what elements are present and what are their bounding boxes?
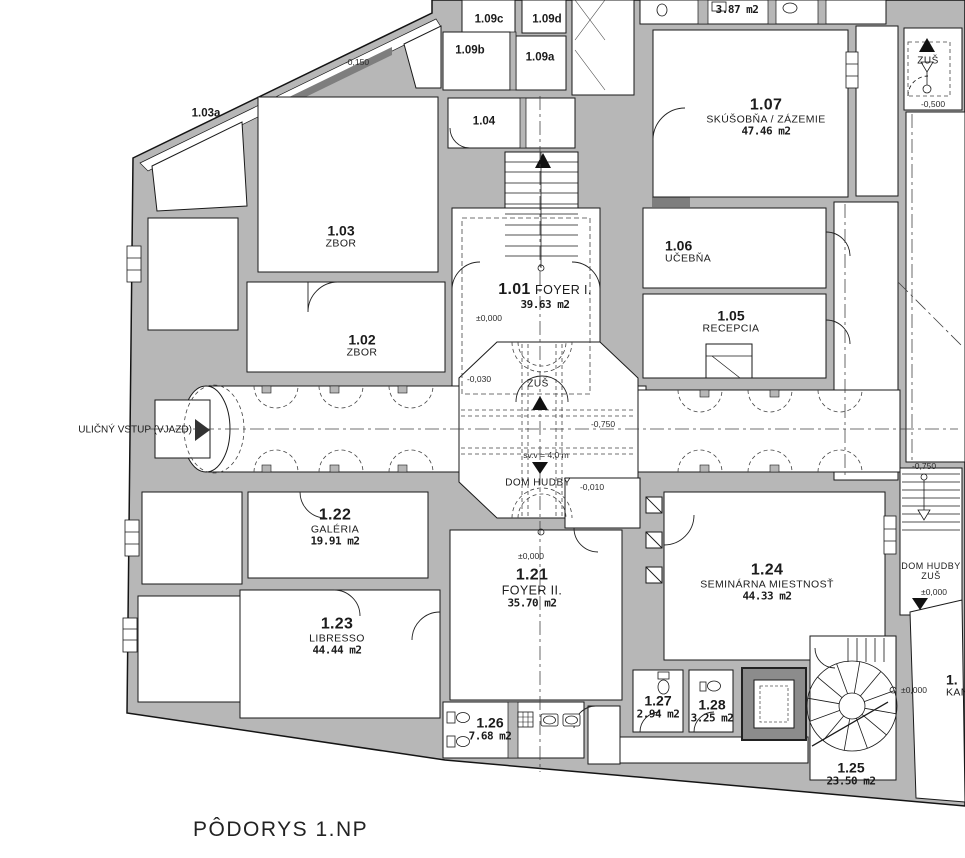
elevation-mark: ±0,000	[518, 551, 544, 561]
room-id: 1.26	[469, 715, 512, 730]
room-area: 2.94 m2	[637, 709, 680, 721]
room-label-1-03: 1.03 ZBOR	[326, 224, 357, 251]
room-label-1-05: 1.05 RECEPCIA	[703, 309, 760, 336]
room-area: 3.87 m2	[716, 4, 759, 16]
room-name: UČEBŇA	[665, 254, 711, 266]
marker-dom-hudby-zus-right: DOM HUDBY ZUŠ	[901, 562, 961, 582]
room-label-1-09b: 1.09b	[455, 45, 484, 58]
reception-desk	[706, 344, 752, 378]
room-id: 1.21	[502, 566, 563, 584]
elevation-mark: -0,030	[467, 374, 491, 384]
room-name: FOYER I.	[535, 283, 592, 297]
room-area: 23.50 m2	[827, 776, 876, 788]
elevation-mark: -0,500	[921, 99, 945, 109]
room-label-1-09c: 1.09c	[475, 14, 504, 27]
room-label-1-23: 1.23 LIBRESSO 44.44 m2	[309, 615, 365, 656]
room-id: 1.05	[703, 309, 760, 324]
clear-height-note: sv.v = 4,0 m	[523, 450, 568, 460]
room-name: ZBOR	[347, 348, 378, 360]
room-area: 19.91 m2	[311, 536, 360, 548]
room-label-1-22: 1.22 GALÉRIA 19.91 m2	[311, 506, 360, 547]
room-id: 1.27	[637, 693, 680, 708]
room-label-1-26: 1.26 7.68 m2	[469, 715, 512, 742]
room-label-1-28: 1.28 3.25 m2	[691, 697, 734, 724]
room-label-1-09a: 1.09a	[526, 52, 555, 65]
room-area: 39.63 m2	[498, 299, 591, 311]
elevation-mark: ±0,000	[476, 313, 502, 323]
marker-zus-topright: ZUŠ	[917, 56, 939, 67]
room-area: 7.68 m2	[469, 731, 512, 743]
room-label-1-09d: 1.09d	[532, 14, 561, 27]
room-id: 1.09a	[526, 52, 555, 65]
room-id: 1.09c	[475, 14, 504, 27]
elevation-mark: -0,750	[591, 419, 615, 429]
room-id: 1.09d	[532, 14, 561, 27]
room-area: 47.46 m2	[706, 126, 825, 138]
room-id: 1.28	[691, 697, 734, 712]
room-interiors	[138, 0, 965, 802]
room-id: 1.07	[706, 96, 825, 114]
room-label-1-03a: 1.03a	[192, 108, 221, 121]
drawing-title: PÔDORYS 1.NP	[193, 818, 368, 842]
elevation-mark: -0,010	[580, 482, 604, 492]
elevation-mark: ±0,000	[921, 587, 947, 597]
room-id: 1.09b	[455, 45, 484, 58]
room-id: 1.04	[473, 116, 495, 129]
street-entry-label: ULIČNÝ VSTUP (VJAZD)	[78, 425, 192, 436]
room-id: 1.03	[326, 224, 357, 239]
room-label-1-04: 1.04	[473, 116, 495, 129]
elevation-mark: ±0,000	[901, 685, 927, 695]
room-id: 1.24	[700, 561, 834, 579]
marker-dom-hudby-courtyard: DOM HUDBY	[505, 478, 571, 489]
room-id: 1.22	[311, 506, 360, 524]
floor-plan-canvas: 1.01 FOYER I. 39.63 m2 1.02 ZBOR 1.03 ZB…	[0, 0, 965, 858]
room-label-1-25: 1.25 23.50 m2	[827, 760, 876, 787]
room-name: ZBOR	[326, 239, 357, 251]
room-label-1-02: 1.02 ZBOR	[347, 333, 378, 360]
room-id: 1.	[946, 673, 965, 688]
elevator-shaft	[742, 668, 806, 740]
room-label-kan: 1. KAN	[946, 673, 965, 700]
elevation-mark: -0,150	[345, 57, 369, 67]
room-label-1-06: 1.06 UČEBŇA	[665, 239, 711, 266]
room-label-top-cut: 3.87 m2	[716, 4, 759, 16]
room-id: 1.02	[347, 333, 378, 348]
room-area: 44.33 m2	[700, 591, 834, 603]
room-id: 1.01	[498, 281, 530, 298]
room-area: 3.25 m2	[691, 713, 734, 725]
room-id: 1.03a	[192, 108, 221, 121]
room-id: 1.25	[827, 760, 876, 775]
room-name: FOYER II.	[502, 584, 563, 598]
room-area: 44.44 m2	[309, 645, 365, 657]
room-label-1-01: 1.01 FOYER I. 39.63 m2	[498, 281, 591, 311]
room-name: KAN	[946, 688, 965, 700]
room-label-1-21: 1.21 FOYER II. 35.70 m2	[502, 566, 563, 609]
room-label-1-27: 1.27 2.94 m2	[637, 693, 680, 720]
elevation-mark: -0,750	[912, 461, 936, 471]
room-name: RECEPCIA	[703, 324, 760, 336]
room-label-1-24: 1.24 SEMINÁRNA MIESTNOSŤ 44.33 m2	[700, 561, 834, 602]
marker-zus-courtyard: ZUŠ	[527, 379, 549, 390]
room-label-1-07: 1.07 SKÚŠOBŇA / ZÁZEMIE 47.46 m2	[706, 96, 825, 137]
room-id: 1.23	[309, 615, 365, 633]
room-area: 35.70 m2	[502, 598, 563, 610]
